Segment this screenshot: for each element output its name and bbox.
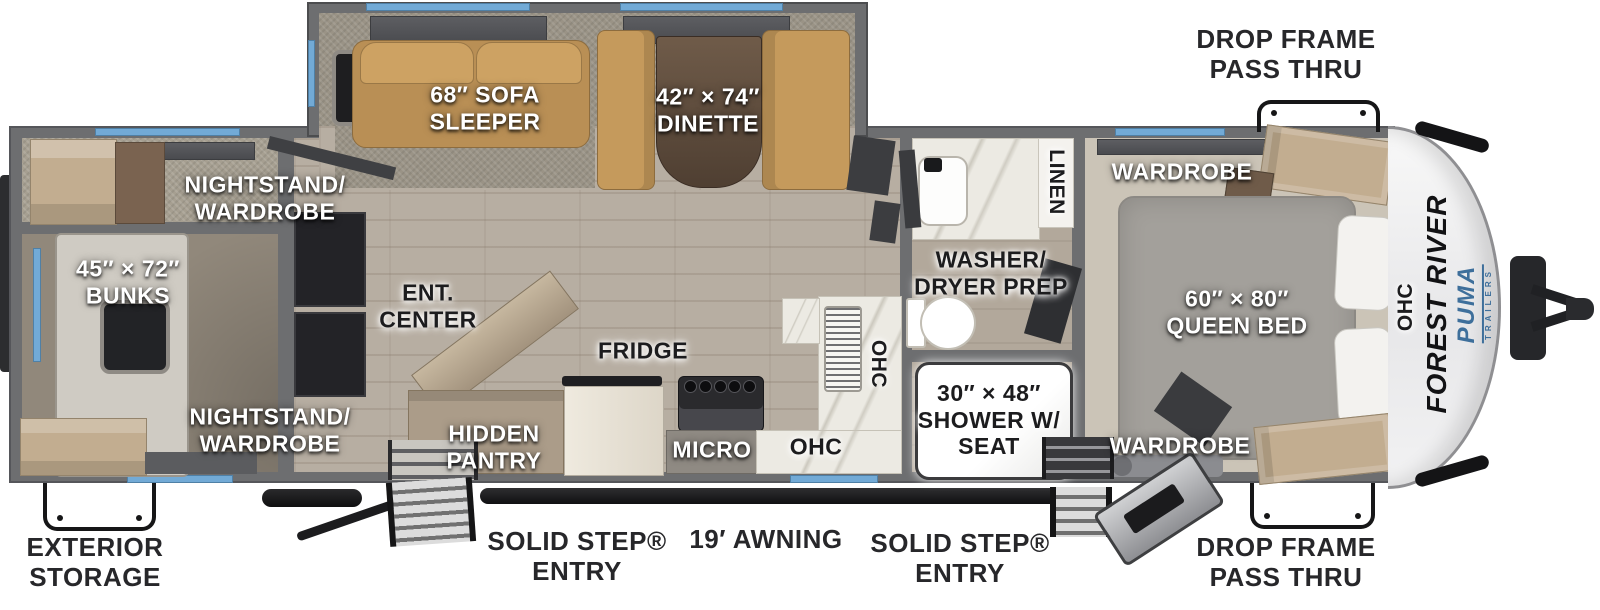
toilet-bowl — [920, 296, 976, 350]
brand-tagline: TRAILERS — [1482, 265, 1493, 344]
kitchen-backsplash — [782, 298, 820, 344]
hitch-coupler — [1566, 298, 1594, 320]
sink-dishrack — [824, 306, 862, 392]
label-solid-step-left: SOLID STEP® ENTRY — [487, 526, 666, 586]
label-wardrobe-top: WARDROBE — [1112, 159, 1253, 186]
wall-bathroom-mid — [912, 350, 1072, 362]
label-nightstand-wardrobe-top: NIGHTSTAND/ WARDROBE — [185, 171, 346, 224]
label-awning: 19′ AWNING — [689, 524, 842, 554]
stove-burners — [684, 380, 756, 392]
brand-model: PUMA — [1453, 265, 1481, 344]
ent-center-panel-lower — [294, 312, 366, 397]
label-fridge: FRIDGE — [598, 338, 688, 365]
brand-name: FOREST RIVER — [1421, 195, 1453, 414]
entry-door-window — [1123, 483, 1185, 534]
window-slideout-right-strip — [620, 3, 783, 11]
hatch-rivet — [1271, 110, 1277, 116]
ent-center-panel-upper — [294, 212, 366, 307]
fridge-unit — [564, 386, 664, 476]
label-linen: LINEN — [1044, 149, 1068, 215]
label-washer-dryer-prep: WASHER/ DRYER PREP — [914, 246, 1068, 299]
hatch-outline-bottom-left — [43, 483, 156, 531]
hatch-rivet — [1360, 110, 1366, 116]
label-solid-step-right: SOLID STEP® ENTRY — [870, 528, 1049, 588]
hatch-rivet — [1264, 513, 1270, 519]
label-wardrobe-bottom: WARDROBE — [1110, 433, 1251, 460]
label-nightstand-wardrobe-bottom: NIGHTSTAND/ WARDROBE — [190, 403, 351, 456]
label-ohc-kitchen-lower: OHC — [790, 434, 843, 461]
sofa-back-cushion-left — [360, 42, 474, 84]
window-rear-side — [33, 248, 41, 362]
floorplan-canvas: FOREST RIVER PUMA TRAILERS NIGHTSTAND/ W… — [0, 0, 1600, 610]
label-ohc-bedroom: OHC — [1394, 283, 1418, 331]
label-sofa-sleeper: 68″ SOFA SLEEPER — [430, 81, 541, 134]
label-ent-center: ENT. CENTER — [379, 279, 477, 332]
fridge-top-trim — [562, 376, 662, 386]
label-hidden-pantry: HIDDEN PANTRY — [447, 420, 542, 473]
label-queen-bed: 60″ × 80″ QUEEN BED — [1166, 285, 1307, 338]
hitch-frame-vertical — [1510, 256, 1546, 360]
hatch-outline-top — [1257, 100, 1380, 132]
hatch-rivet — [1355, 513, 1361, 519]
label-ohc-kitchen-upper: OHC — [866, 340, 890, 388]
window-bottom-kitchen — [790, 475, 878, 483]
label-dinette: 42″ × 74″ DINETTE — [656, 83, 760, 136]
window-top-rear — [95, 128, 240, 136]
window-top-bedroom — [1115, 128, 1225, 136]
label-drop-frame-bottom: DROP FRAME PASS THRU — [1196, 532, 1375, 592]
cabinet-wood-top — [115, 142, 165, 224]
hatch-rivet — [57, 515, 63, 521]
hatch-outline-bottom-right — [1250, 483, 1375, 529]
dinette-bench-right — [762, 30, 850, 190]
kitchen-counter-upper-dark — [846, 135, 895, 195]
label-shower: 30″ × 48″ SHOWER W/ SEAT — [918, 380, 1061, 460]
window-slideout-side — [308, 40, 315, 107]
window-slideout-left-strip — [366, 3, 530, 11]
label-bunks: 45″ × 72″ BUNKS — [76, 255, 180, 308]
dinette-bench-left — [597, 30, 655, 190]
label-exterior-storage: EXTERIOR STORAGE — [27, 532, 164, 592]
sofa-back-cushion-right — [476, 42, 582, 84]
label-drop-frame-top: DROP FRAME PASS THRU — [1196, 24, 1375, 84]
bathroom-faucet — [924, 158, 942, 172]
kitchen-counter-mid-dark — [869, 200, 900, 243]
bedroom-top-shelf — [1097, 139, 1265, 155]
brand-logo: PUMA TRAILERS — [1453, 265, 1493, 344]
hatch-rivet — [136, 515, 142, 521]
cabinet-nightstand-bottom — [20, 418, 147, 476]
bunk-window — [100, 300, 170, 374]
cabinet-nightstand-top — [30, 139, 117, 225]
pillow-head-top — [1334, 215, 1397, 312]
awning-roller-end — [262, 489, 362, 507]
entry-steps-left-exterior — [386, 477, 476, 547]
awning-roller-bar — [480, 488, 1098, 504]
label-micro: MICRO — [672, 437, 751, 464]
